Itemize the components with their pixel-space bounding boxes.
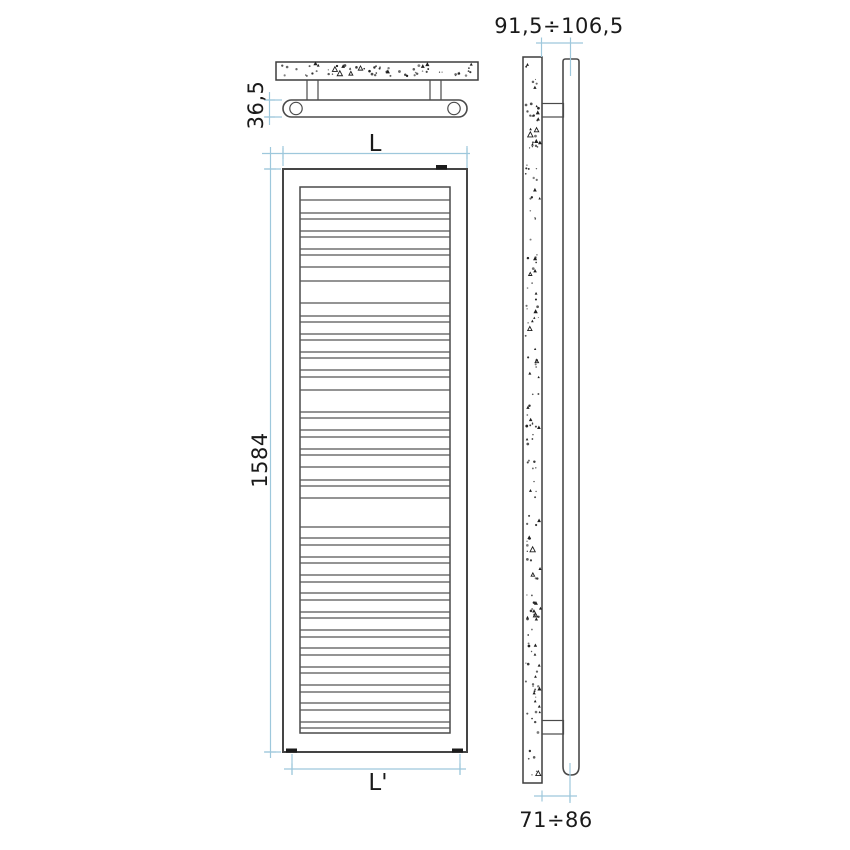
radiator-side-profile [563, 59, 579, 775]
bottom-connection-left [286, 749, 297, 753]
dimension-wall-distance-top: 91,5÷106,5 [494, 14, 623, 76]
bottom-connection-right [452, 749, 463, 753]
wall-distance-top-label: 91,5÷106,5 [494, 14, 623, 38]
front-view: L 1584 L' [248, 131, 470, 796]
wall-section-plan [276, 62, 478, 80]
width-dimension-label: L [369, 131, 382, 157]
radiator-plan-body [283, 100, 467, 117]
dimension-width-bottom: L' [284, 754, 466, 796]
pipe-section-right [448, 102, 460, 114]
top-view: 36,5 [244, 61, 478, 129]
bottom-width-dimension-label: L' [368, 770, 387, 796]
pipe-section-left [290, 102, 302, 114]
slatted-panel [300, 187, 450, 733]
radiator-technical-drawing-page: 36,5 L 1584 [0, 0, 850, 850]
height-dimension-label: 1584 [248, 432, 272, 487]
air-vent-mark [436, 165, 447, 170]
dimension-height: 1584 [248, 147, 281, 758]
dimension-depth: 36,5 [244, 81, 282, 130]
wall-distance-bottom-label: 71÷86 [519, 808, 593, 832]
bracket-top-side [542, 104, 564, 118]
side-view: 91,5÷106,5 71÷86 [494, 14, 623, 832]
bracket-bottom-side [542, 721, 564, 735]
technical-drawing-canvas: 36,5 L 1584 [0, 0, 850, 850]
wall-section-side [523, 57, 542, 783]
depth-dimension-label: 36,5 [244, 81, 268, 130]
